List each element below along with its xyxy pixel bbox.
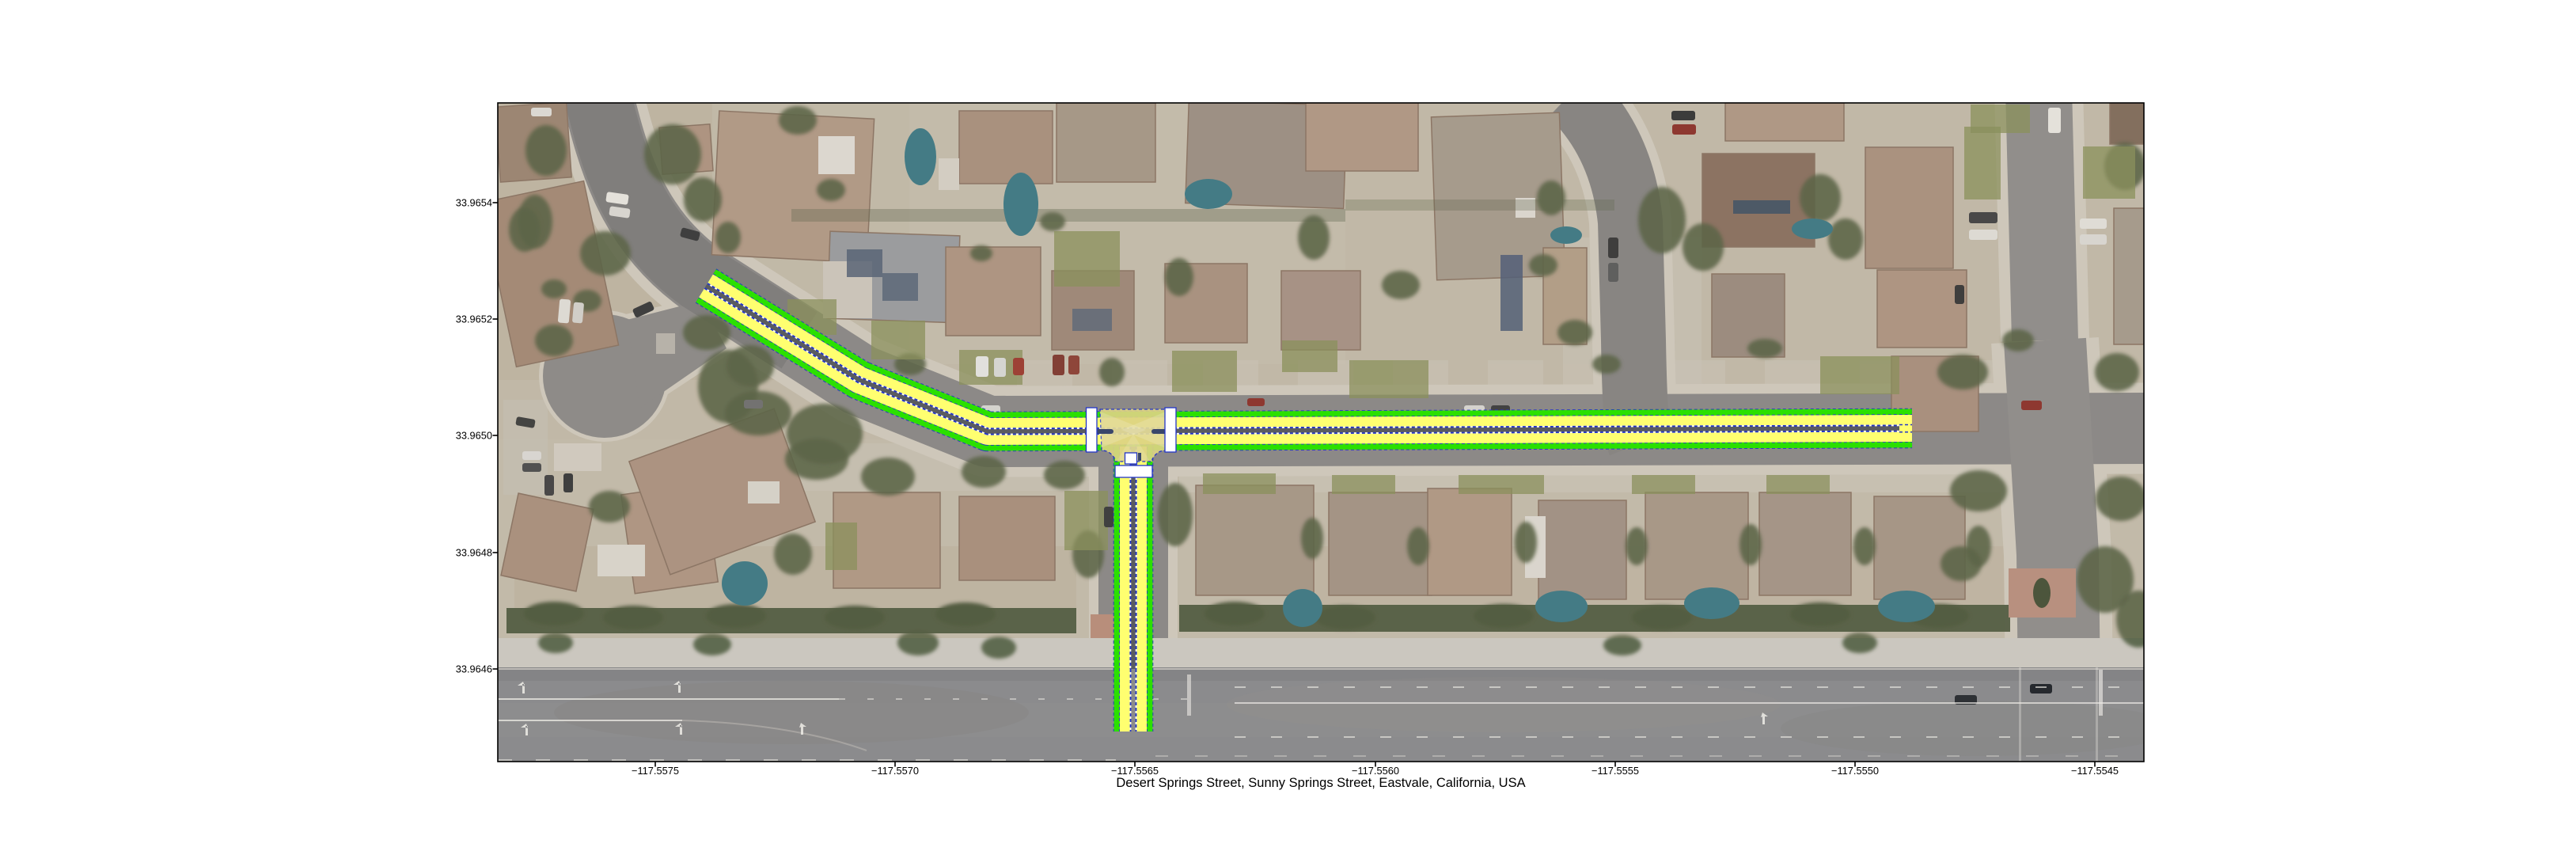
- svg-text:−117.5565: −117.5565: [1111, 765, 1159, 777]
- svg-text:33.9648: 33.9648: [456, 547, 492, 559]
- svg-text:−117.5555: −117.5555: [1592, 765, 1639, 777]
- svg-text:−117.5560: −117.5560: [1352, 765, 1399, 777]
- svg-text:−117.5545: −117.5545: [2071, 765, 2119, 777]
- svg-text:33.9650: 33.9650: [456, 430, 492, 442]
- svg-text:−117.5550: −117.5550: [1831, 765, 1879, 777]
- svg-text:−117.5575: −117.5575: [632, 765, 679, 777]
- svg-text:33.9646: 33.9646: [456, 663, 492, 675]
- svg-text:33.9652: 33.9652: [456, 313, 492, 325]
- svg-text:33.9654: 33.9654: [456, 197, 492, 209]
- svg-text:−117.5570: −117.5570: [871, 765, 919, 777]
- svg-text:Desert Springs Street, Sunny S: Desert Springs Street, Sunny Springs Str…: [1116, 776, 1525, 790]
